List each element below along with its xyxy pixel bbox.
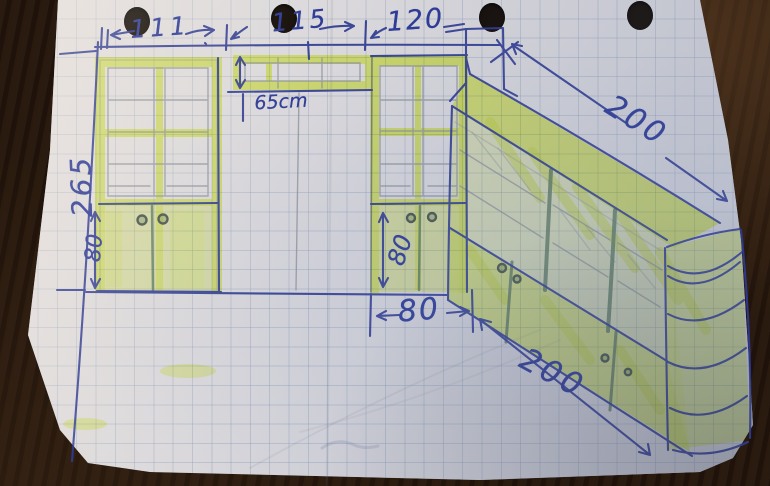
dim-label-width-left: 111: [124, 13, 196, 43]
graph-paper: [0, 0, 770, 486]
photo-of-sketch: 111 115 120 65cm 265 80 80 80 200 200: [0, 0, 770, 486]
punch-hole-3: [479, 3, 505, 32]
dim-label-width-middle: 115: [264, 5, 336, 36]
punch-hole-4: [627, 1, 653, 30]
dim-label-base-width-middle: 80: [383, 293, 455, 329]
dim-label-shelf-height: 65cm: [246, 91, 317, 114]
dim-label-width-right: 120: [377, 4, 454, 36]
